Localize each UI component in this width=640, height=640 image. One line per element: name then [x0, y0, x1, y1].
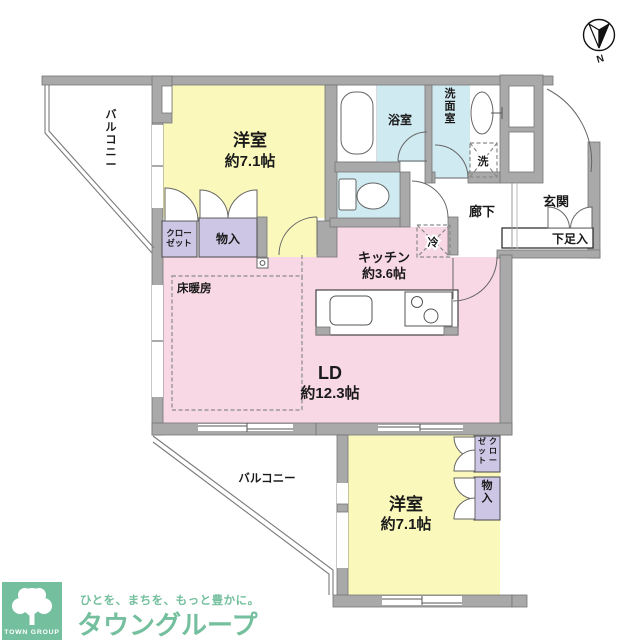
balcony-top-label: バルコニー: [106, 108, 117, 171]
living-dining-label: LD: [318, 363, 342, 383]
stove-icon: [405, 292, 452, 326]
shoe-cabinet-label: 下足入: [552, 232, 588, 246]
closet2-label-col1: クロー: [489, 436, 497, 465]
entrance-door: [547, 89, 592, 172]
living-dining-size: 約12.3帖: [300, 384, 359, 402]
washer-space-label: 洗: [478, 154, 489, 168]
bedroom2-label: 洋室: [389, 494, 423, 514]
storage1-label: 物入: [216, 231, 240, 246]
closet1-label-line1: クロー: [166, 228, 192, 238]
bathtub-icon: [341, 92, 373, 154]
wall-control-icon: [257, 258, 268, 268]
washroom-label: 洗面室: [445, 86, 456, 125]
storage2-label: 物入: [482, 478, 493, 505]
floorplan-svg: 洋室 約7.1帖 洋室 約7.1帖 LD 約12.3帖 キッチン 約3.6帖 浴…: [0, 0, 640, 640]
shoe-cabinet-door: [548, 207, 570, 228]
brand-tagline: ひとを、まちを、もっと豊かに。: [80, 593, 260, 607]
brand-company-name: タウングループ: [77, 610, 258, 640]
balcony-bottom-rail: [153, 436, 333, 595]
bedroom1-label: 洋室: [233, 130, 267, 150]
kitchen-size: 約3.6帖: [362, 266, 406, 281]
toilet-door: [412, 181, 448, 218]
kitchen-counter: [316, 290, 458, 335]
north-compass-icon: N: [584, 20, 615, 66]
bathroom-label: 浴室: [388, 112, 412, 127]
kitchen-label: キッチン: [358, 250, 410, 265]
floor-heating-label: 床暖房: [177, 281, 212, 295]
hallway-label: 廊下: [469, 204, 495, 219]
refrigerator-space-label: 冷: [428, 235, 439, 249]
closet1-label-line2: ゼット: [166, 238, 192, 248]
logo-square-text: TOWN GROUP: [4, 629, 59, 636]
north-label: N: [595, 53, 605, 66]
floorplan-image: 洋室 約7.1帖 洋室 約7.1帖 LD 約12.3帖 キッチン 約3.6帖 浴…: [0, 0, 640, 640]
brand-logo: TOWN GROUP ひとを、まちを、もっと豊かに。 タウングループ: [2, 582, 260, 640]
bedroom2-size: 約7.1帖: [381, 515, 432, 533]
kitchen-sink-icon: [330, 296, 372, 325]
bedroom1-size: 約7.1帖: [225, 152, 276, 170]
sink-icon: [471, 92, 502, 134]
closet2-label-col2: ゼット: [478, 436, 486, 465]
entrance-label: 玄関: [543, 194, 569, 209]
balcony-bottom-label: バルコニー: [238, 472, 295, 485]
